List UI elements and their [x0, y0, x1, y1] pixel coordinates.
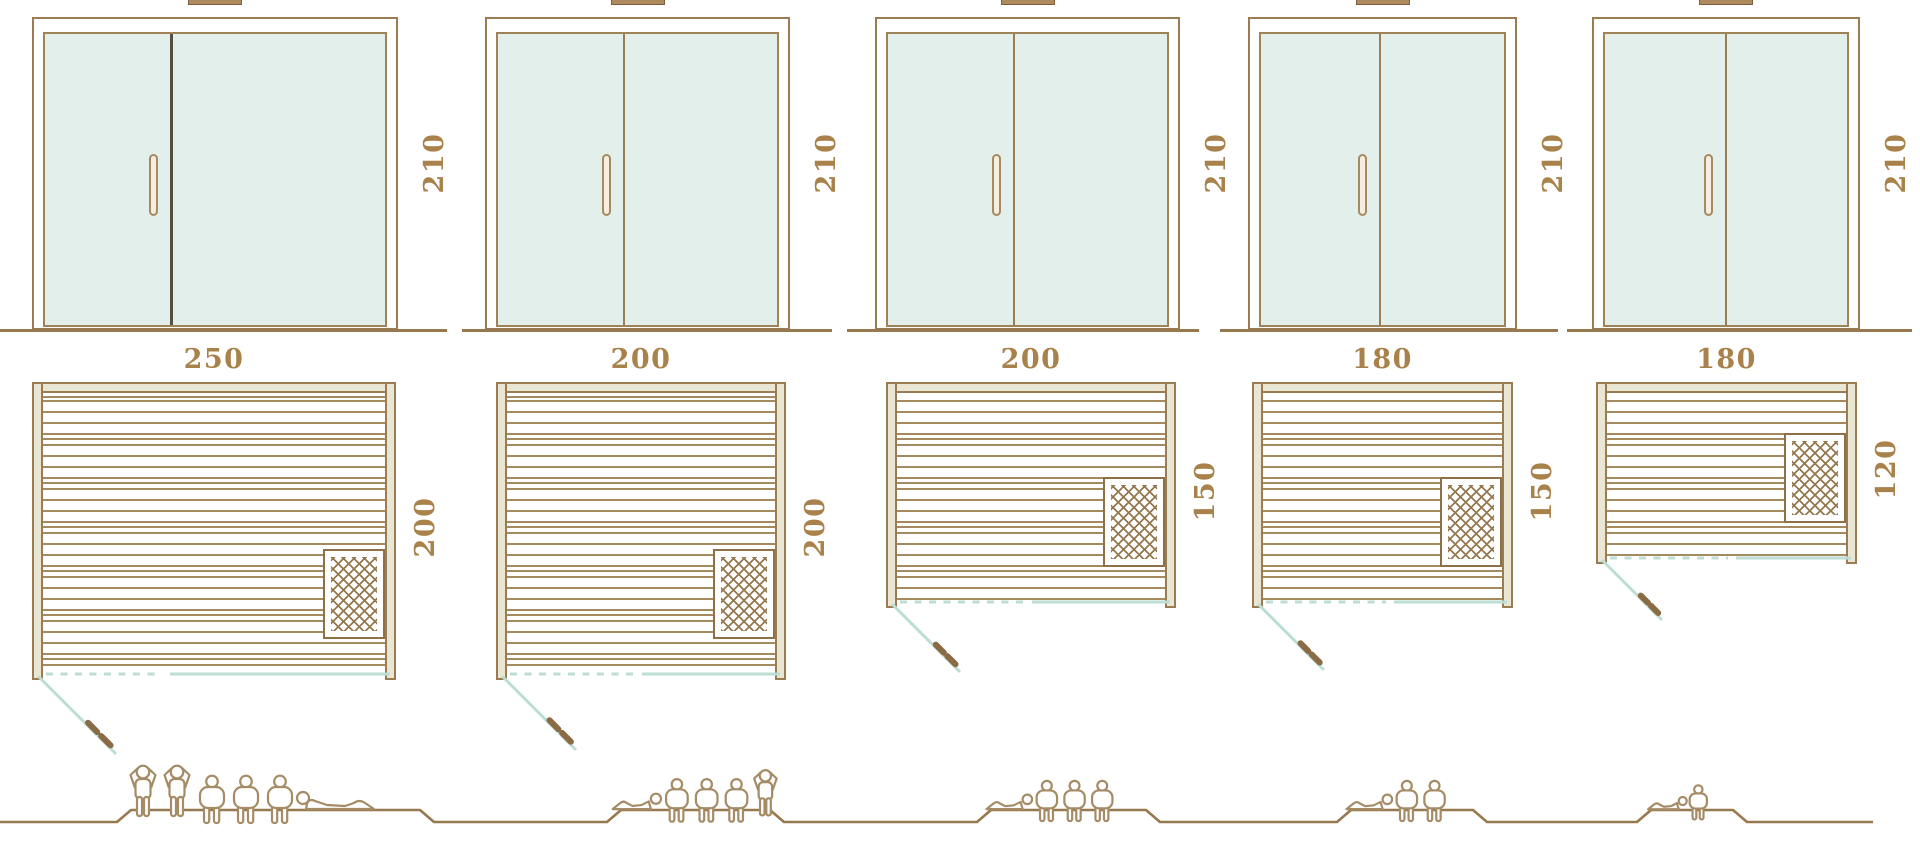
sauna-door-elevation	[1592, 17, 1860, 330]
door-height-label: 210	[403, 131, 467, 195]
heater-crosshatch	[1448, 485, 1494, 559]
door-swing-icon	[1602, 558, 1851, 620]
capacity-group-sauna-250x200	[131, 766, 375, 823]
open-door-handle-icon	[936, 645, 944, 653]
person-sitting-icon	[696, 779, 718, 822]
person-sitting-icon	[1037, 781, 1057, 821]
door-swing-icon	[38, 674, 390, 754]
capacity-group-sauna-180x150	[1347, 781, 1445, 821]
sauna-door-elevation	[875, 17, 1180, 330]
door-handle	[1358, 154, 1367, 216]
door-divider	[1725, 34, 1727, 325]
sauna-door-elevation	[485, 17, 790, 330]
door-vent-icon	[1699, 0, 1753, 5]
person-lying-icon	[1347, 795, 1393, 810]
door-swing-icon	[1258, 602, 1507, 670]
capacity-group-sauna-200x200	[613, 770, 777, 822]
person-sitting-icon	[1397, 781, 1417, 821]
plan-depth-label: 200	[784, 495, 848, 559]
door-height-label: 210	[1522, 131, 1586, 195]
sauna-door-elevation	[32, 17, 398, 330]
open-door-handle-icon	[88, 723, 97, 732]
plan-width-label: 250	[32, 344, 396, 376]
capacity-group-sauna-180x120	[1648, 785, 1707, 819]
sauna-door-elevation	[1248, 17, 1517, 330]
heater-icon	[1440, 477, 1502, 567]
door-handle	[602, 154, 611, 216]
door-swing-icon	[892, 602, 1170, 672]
open-door-handle-icon	[947, 656, 955, 664]
glass-panel	[496, 32, 779, 327]
plan-depth-label: 150	[1174, 459, 1238, 523]
plan-depth-label: 200	[394, 495, 458, 559]
door-vent-icon	[188, 0, 242, 5]
door-divider	[170, 34, 173, 325]
open-door-handle-icon	[1651, 606, 1658, 613]
person-lying-icon	[297, 792, 374, 809]
door-vent-icon	[1001, 0, 1055, 5]
heater-crosshatch	[1792, 441, 1838, 515]
person-sitting-icon	[1064, 781, 1084, 821]
person-standing-icon	[165, 766, 190, 816]
person-standing-icon	[754, 770, 777, 815]
plan-depth-label: 150	[1511, 459, 1575, 523]
heater-icon	[1103, 477, 1165, 567]
capacity-group-sauna-200x150	[987, 781, 1113, 821]
heater-icon	[1784, 433, 1846, 523]
person-sitting-icon	[1092, 781, 1112, 821]
person-standing-icon	[131, 766, 156, 816]
person-sitting-icon	[1690, 785, 1707, 819]
heater-icon	[323, 549, 385, 639]
plan-width-label: 180	[1252, 344, 1513, 376]
door-swing-icon	[502, 674, 780, 750]
door-divider	[1379, 34, 1381, 325]
plan-width-label: 200	[886, 344, 1176, 376]
person-lying-icon	[987, 795, 1033, 810]
heater-icon	[713, 549, 775, 639]
plan-width-label: 180	[1596, 344, 1857, 376]
open-door-handle-icon	[1312, 655, 1320, 663]
door-handle	[149, 154, 158, 216]
heater-crosshatch	[1111, 485, 1157, 559]
plan-depth-label: 120	[1855, 437, 1919, 501]
door-handle	[992, 154, 1001, 216]
person-lying-icon	[1648, 797, 1687, 809]
door-height-label: 210	[795, 131, 859, 195]
sauna-size-diagram: 2502102002002102002002101501802101501802…	[0, 0, 1920, 856]
door-vent-icon	[611, 0, 665, 5]
person-lying-icon	[613, 794, 661, 809]
heater-crosshatch	[331, 557, 377, 631]
open-door-handle-icon	[550, 720, 559, 729]
capacity-ground-line	[0, 810, 1873, 822]
person-sitting-icon	[234, 776, 258, 823]
door-divider	[1013, 34, 1015, 325]
glass-panel	[886, 32, 1169, 327]
door-divider	[623, 34, 625, 325]
open-door-handle-icon	[562, 733, 571, 742]
person-sitting-icon	[666, 779, 688, 822]
person-sitting-icon	[200, 776, 224, 823]
open-door-handle-icon	[101, 736, 110, 745]
glass-panel	[1259, 32, 1506, 327]
heater-crosshatch	[721, 557, 767, 631]
person-sitting-icon	[1424, 781, 1444, 821]
glass-panel	[1603, 32, 1849, 327]
open-door-handle-icon	[1641, 596, 1648, 603]
person-sitting-icon	[268, 776, 292, 823]
door-vent-icon	[1356, 0, 1410, 5]
plan-width-label: 200	[496, 344, 786, 376]
door-handle	[1704, 154, 1713, 216]
door-height-label: 210	[1865, 131, 1920, 195]
person-sitting-icon	[726, 779, 748, 822]
door-height-label: 210	[1185, 131, 1249, 195]
glass-panel	[43, 32, 387, 327]
open-door-handle-icon	[1301, 643, 1309, 651]
